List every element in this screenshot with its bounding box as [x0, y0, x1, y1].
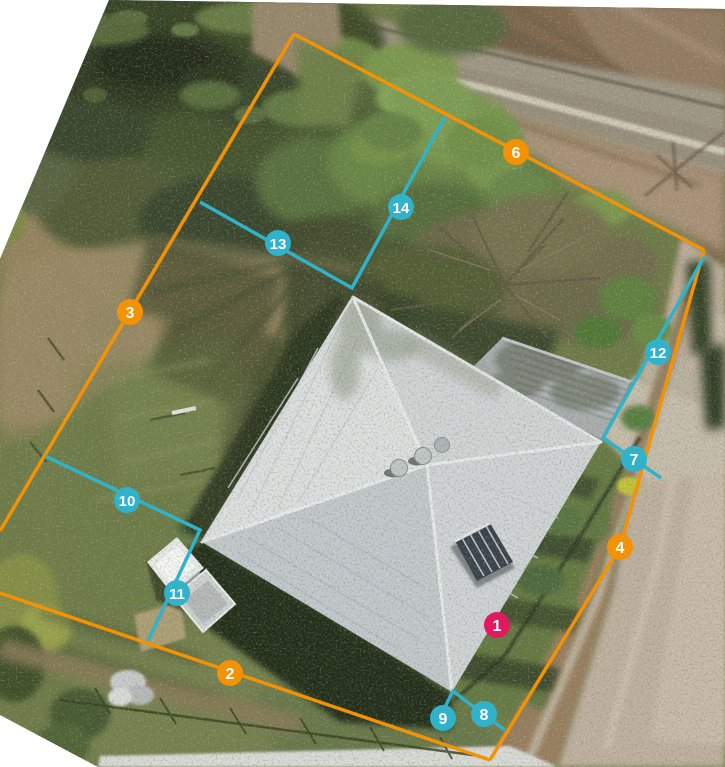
svg-text:9: 9 [439, 711, 448, 728]
svg-text:7: 7 [630, 452, 639, 469]
svg-text:6: 6 [512, 145, 521, 162]
svg-text:12: 12 [650, 345, 667, 362]
svg-text:4: 4 [616, 540, 625, 557]
svg-text:2: 2 [226, 666, 235, 683]
svg-text:3: 3 [126, 305, 135, 322]
svg-text:13: 13 [270, 236, 287, 253]
svg-text:14: 14 [393, 200, 410, 217]
svg-text:8: 8 [480, 707, 489, 724]
svg-text:1: 1 [493, 618, 502, 635]
svg-text:10: 10 [119, 493, 136, 510]
svg-text:11: 11 [169, 586, 185, 603]
